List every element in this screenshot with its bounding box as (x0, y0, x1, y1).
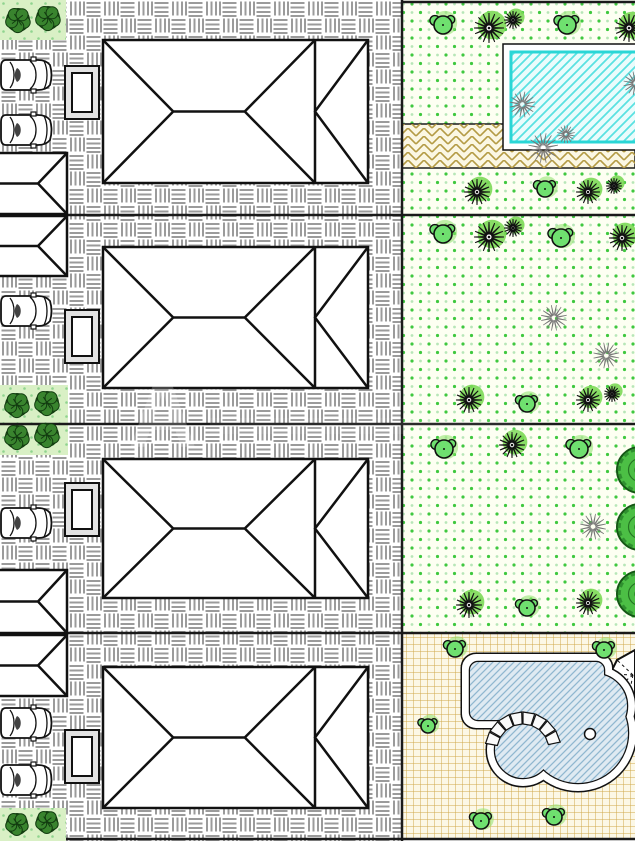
site-plan-stage: A (0, 0, 635, 849)
shrub-center-dot (442, 24, 444, 26)
planter-inner (72, 737, 92, 776)
spiky-center-dot (621, 237, 624, 240)
car-body (1, 765, 52, 795)
garage-hip-roof (0, 570, 67, 633)
car-mirror (31, 293, 36, 297)
spiky-center-dot (468, 399, 471, 402)
car-top-view (1, 112, 52, 148)
shrub-center-dot (454, 648, 456, 650)
car-top-view (1, 705, 52, 741)
car-mirror (31, 325, 36, 329)
spiky-center-dot (476, 191, 479, 194)
car-top-view (1, 293, 52, 329)
car-mirror (31, 794, 36, 798)
shrub-center-dot (566, 24, 568, 26)
car-body (1, 708, 52, 738)
spiky-center-dot (587, 602, 590, 605)
spiky-center-dot (468, 604, 471, 607)
site-plan-svg (0, 0, 635, 849)
car-top-view (1, 505, 52, 541)
spiky-center-dot (512, 227, 515, 230)
car-body (1, 296, 52, 326)
shrub-center-dot (442, 233, 444, 235)
car-top-view (1, 762, 52, 798)
shrub-center-dot (544, 188, 546, 190)
shrub-center-dot (427, 725, 429, 727)
shrub-center-dot (560, 237, 562, 239)
shrub-center-dot (553, 816, 555, 818)
car-mirror (31, 762, 36, 766)
shrub-center-dot (603, 649, 605, 651)
spiky-center-dot (511, 444, 514, 447)
square-planter (65, 310, 99, 363)
shrub-center-dot (480, 820, 482, 822)
spiky-center-dot (488, 236, 491, 239)
swimming-pool-top (511, 52, 635, 142)
planter-inner (72, 490, 92, 529)
car-mirror (31, 705, 36, 709)
car-body (1, 508, 52, 538)
car-body (1, 115, 52, 145)
shrub-center-dot (526, 403, 528, 405)
house-hip-roof (103, 459, 368, 598)
car-mirror (31, 57, 36, 61)
square-planter (65, 66, 99, 119)
car-mirror (31, 737, 36, 741)
square-planter (65, 483, 99, 536)
spiky-center-dot (587, 191, 590, 194)
spiky-center-dot (628, 27, 631, 30)
car-mirror (31, 89, 36, 93)
house-hip-roof (103, 667, 368, 808)
car-mirror (31, 505, 36, 509)
spiky-center-dot (613, 185, 616, 188)
planter-inner (72, 73, 92, 112)
spiky-center-dot (587, 399, 590, 402)
spiky-center-dot (512, 19, 515, 22)
shrub-center-dot (443, 448, 445, 450)
garage-hip-roof (0, 216, 67, 276)
house-hip-roof (103, 247, 368, 388)
garage-hip-roof (0, 153, 67, 214)
car-mirror (31, 112, 36, 116)
shrub-center-dot (578, 448, 580, 450)
shrub-center-dot (526, 607, 528, 609)
car-top-view (1, 57, 52, 93)
pool-drain (585, 729, 596, 740)
car-mirror (31, 537, 36, 541)
house-hip-roof (103, 40, 368, 183)
car-body (1, 60, 52, 90)
planter-inner (72, 317, 92, 356)
garage-hip-roof (0, 635, 67, 696)
car-mirror (31, 144, 36, 148)
spiky-center-dot (488, 27, 491, 30)
square-planter (65, 730, 99, 783)
spiky-center-dot (611, 393, 614, 396)
